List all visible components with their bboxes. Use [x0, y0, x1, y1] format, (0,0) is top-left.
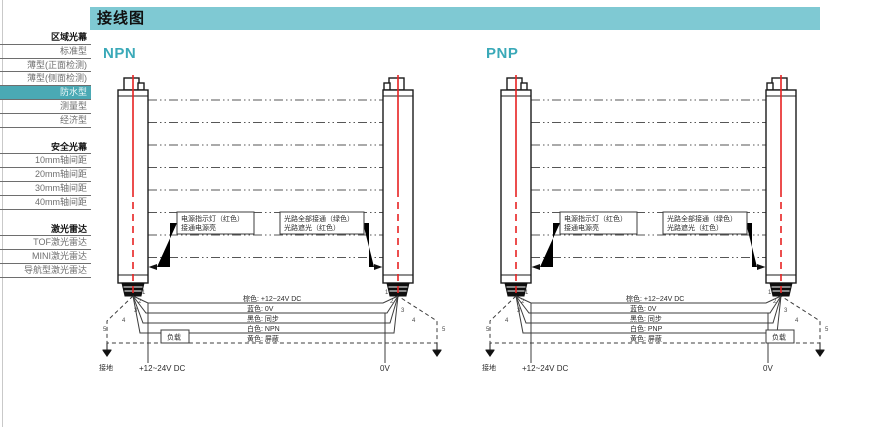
pin-number: 2	[773, 299, 777, 305]
callout-power-indicator: 电源指示灯（红色） 接通电源亮	[532, 212, 638, 270]
wire-labels: 棕色: +12~24V DC 蓝色: 0V 黑色: 同步 白色: NPN 黄色:…	[243, 294, 301, 343]
sidebar-section-gap	[0, 128, 91, 141]
ground-symbol	[433, 343, 442, 357]
callout-power-line2: 接通电源亮	[181, 223, 216, 232]
arrow-left-icon	[149, 264, 158, 270]
callout-status-line1: 光路全部接通（绿色）	[284, 214, 354, 223]
sidebar-item-nav-lidar[interactable]: 导航型激光雷达	[0, 264, 91, 278]
page-title-bar: 接线图	[90, 7, 820, 30]
wire-label-brown: 棕色: +12~24V DC	[243, 294, 301, 303]
callout-status-line2: 光路遮光（红色）	[284, 223, 340, 232]
pin-number: 1	[525, 290, 529, 296]
wire-label-blue: 蓝色: 0V	[630, 304, 657, 313]
wire-label-blue: 蓝色: 0V	[247, 304, 274, 313]
page-title: 接线图	[90, 7, 145, 30]
sidebar-item-waterproof[interactable]: 防水型	[0, 86, 91, 100]
load-box: 负载	[766, 330, 794, 343]
receiver-tower	[766, 75, 796, 296]
sidebar-item-measure[interactable]: 测量型	[0, 100, 91, 114]
pnp-wiring-diagram: 电源指示灯（红色） 接通电源亮 光路全部接通（绿色） 光路遮光（红色） 负载 棕…	[478, 40, 850, 380]
zero-volt-label: 0V	[380, 364, 390, 373]
load-label: 负载	[772, 333, 786, 342]
zero-volt-label: 0V	[763, 364, 773, 373]
callout-power-line2: 接通电源亮	[564, 223, 599, 232]
pin-number: 1	[142, 290, 146, 296]
wire-label-white: 白色: PNP	[630, 324, 663, 333]
sidebar: 区域光幕 标准型 薄型(正面检测) 薄型(侧面检测) 防水型 测量型 经济型 安…	[0, 31, 91, 278]
pin-number: 5	[103, 327, 107, 333]
pin-number: 4	[122, 318, 126, 324]
sidebar-item-thin-side[interactable]: 薄型(侧面检测)	[0, 72, 91, 86]
wire-labels: 棕色: +12~24V DC 蓝色: 0V 黑色: 同步 白色: PNP 黄色:…	[626, 294, 684, 343]
sidebar-item-standard[interactable]: 标准型	[0, 45, 91, 59]
page: 区域光幕 标准型 薄型(正面检测) 薄型(侧面检测) 防水型 测量型 经济型 安…	[0, 0, 874, 427]
sidebar-header-area-curtain: 区域光幕	[0, 31, 91, 45]
sidebar-section-gap	[0, 210, 91, 223]
wire-label-white: 白色: NPN	[247, 324, 280, 333]
emitter-tower	[118, 75, 148, 296]
pin-number: 4	[505, 318, 509, 324]
ground-label: 接地	[482, 363, 496, 372]
emitter-tower	[501, 75, 531, 296]
wire-label-black: 黑色: 同步	[247, 314, 279, 323]
ground-symbol	[816, 343, 825, 357]
sidebar-item-20mm-pitch[interactable]: 20mm轴间距	[0, 168, 91, 182]
sidebar-item-mini-lidar[interactable]: MINI激光雷达	[0, 250, 91, 264]
npn-wiring-diagram: 电源指示灯（红色） 接通电源亮 光路全部接通（绿色） 光路遮光（红色） 负载 棕…	[95, 40, 467, 380]
wire-label-brown: 棕色: +12~24V DC	[626, 294, 684, 303]
callout-status-line2: 光路遮光（红色）	[667, 223, 723, 232]
pin-number: 2	[390, 299, 394, 305]
arrow-right-icon	[757, 264, 766, 270]
pin-number: 5	[486, 327, 490, 333]
load-box: 负载	[161, 330, 189, 343]
wire-label-yellow: 黄色: 屏蔽	[630, 334, 662, 343]
pin-number: 3	[401, 308, 405, 314]
pin-number: 5	[442, 327, 446, 333]
arrow-right-icon	[374, 264, 383, 270]
sidebar-item-10mm-pitch[interactable]: 10mm轴间距	[0, 154, 91, 168]
ground-symbol	[486, 343, 495, 357]
sidebar-item-thin-front[interactable]: 薄型(正面检测)	[0, 59, 91, 73]
receiver-tower	[383, 75, 413, 296]
ground-label: 接地	[99, 363, 113, 372]
pin-number: 5	[825, 327, 829, 333]
callout-power-line1: 电源指示灯（红色）	[564, 214, 627, 223]
pin-number: 3	[784, 308, 788, 314]
ground-symbol	[103, 343, 112, 357]
pin-number: 4	[412, 318, 416, 324]
sidebar-header-safety-curtain: 安全光幕	[0, 141, 91, 155]
callout-power-indicator: 电源指示灯（红色） 接通电源亮	[149, 212, 255, 270]
sidebar-item-40mm-pitch[interactable]: 40mm轴间距	[0, 196, 91, 210]
sidebar-item-economy[interactable]: 经济型	[0, 114, 91, 128]
callout-status-line1: 光路全部接通（绿色）	[667, 214, 737, 223]
load-label: 负载	[167, 333, 181, 342]
callout-power-line1: 电源指示灯（红色）	[181, 214, 244, 223]
arrow-left-icon	[532, 264, 541, 270]
supply-label: +12~24V DC	[522, 364, 568, 373]
wire-label-black: 黑色: 同步	[630, 314, 662, 323]
callout-beam-status: 光路全部接通（绿色） 光路遮光（红色）	[280, 212, 383, 270]
supply-label: +12~24V DC	[139, 364, 185, 373]
wire-label-yellow: 黄色: 屏蔽	[247, 334, 279, 343]
callout-beam-status: 光路全部接通（绿色） 光路遮光（红色）	[663, 212, 766, 270]
sidebar-item-30mm-pitch[interactable]: 30mm轴间距	[0, 182, 91, 196]
sidebar-item-tof-lidar[interactable]: TOF激光雷达	[0, 236, 91, 250]
pin-number: 4	[795, 318, 799, 324]
sidebar-header-lidar: 激光雷达	[0, 223, 91, 237]
